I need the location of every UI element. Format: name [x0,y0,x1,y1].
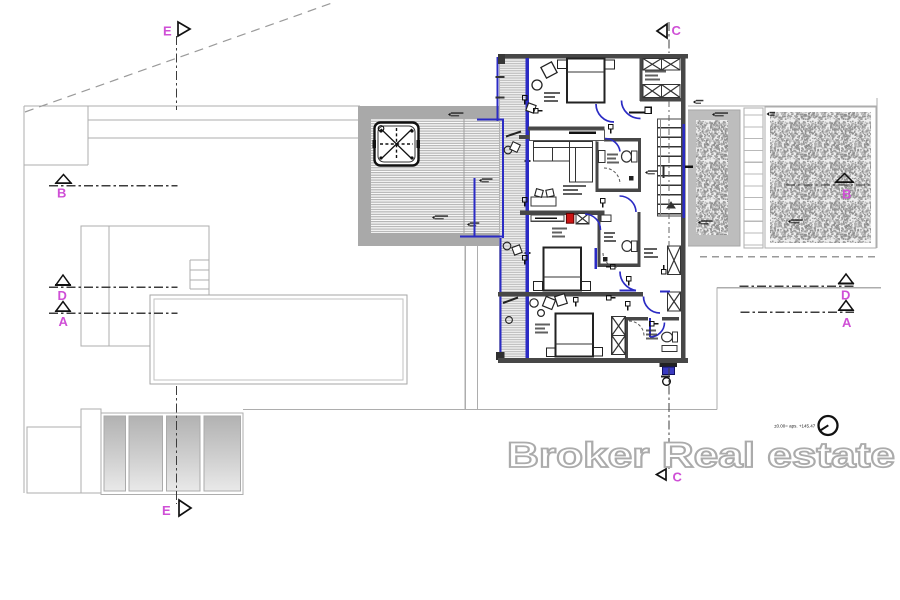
svg-text:B: B [842,187,851,202]
svg-text:B: B [57,186,66,201]
svg-text:E: E [163,24,172,39]
svg-text:D: D [58,288,67,303]
svg-text:A: A [842,315,852,330]
svg-text:Broker Real estate: Broker Real estate [507,435,895,475]
svg-text:A: A [59,314,69,329]
svg-text:E: E [162,503,171,518]
svg-text:C: C [672,23,682,38]
svg-text:±0.00= aps. +145.47: ±0.00= aps. +145.47 [774,424,816,429]
